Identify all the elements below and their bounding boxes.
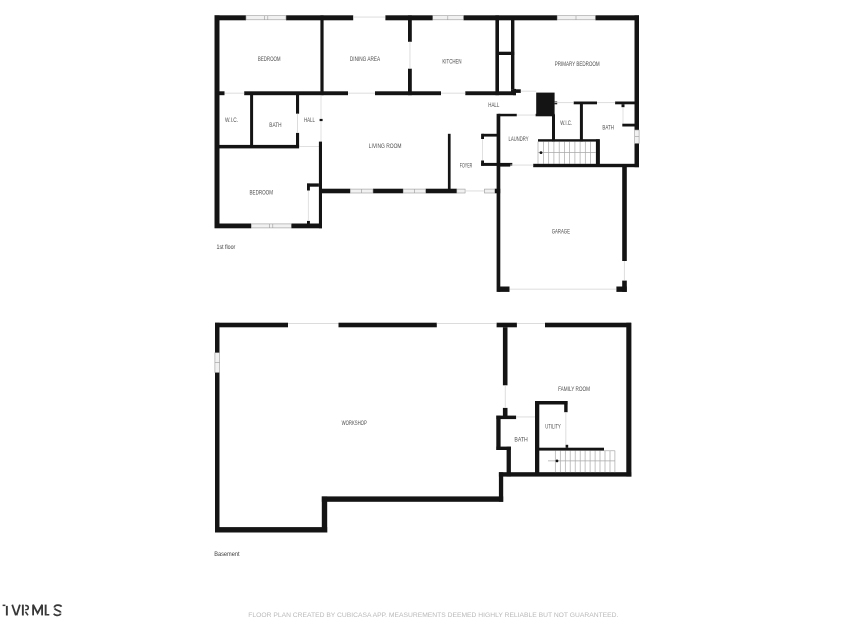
svg-text:LAUNDRY: LAUNDRY — [509, 136, 529, 143]
svg-text:Basement: Basement — [214, 551, 240, 558]
svg-text:UTILITY: UTILITY — [545, 424, 561, 431]
svg-text:KITCHEN: KITCHEN — [442, 59, 461, 66]
svg-text:W.I.C.: W.I.C. — [225, 117, 238, 124]
svg-text:BEDROOM: BEDROOM — [258, 56, 281, 63]
svg-text:WORKSHOP: WORKSHOP — [342, 420, 367, 427]
svg-text:BATH: BATH — [514, 436, 527, 443]
svg-text:FLOOR PLAN CREATED BY CUBICASA: FLOOR PLAN CREATED BY CUBICASA APP. MEAS… — [248, 612, 618, 619]
svg-text:1st floor: 1st floor — [217, 244, 236, 251]
svg-text:GARAGE: GARAGE — [552, 229, 570, 236]
svg-text:W.I.C.: W.I.C. — [560, 120, 572, 127]
svg-text:BATH: BATH — [602, 125, 614, 132]
svg-text:DINING AREA: DINING AREA — [350, 56, 381, 63]
svg-text:FOYER: FOYER — [460, 163, 473, 170]
svg-text:LIVING ROOM: LIVING ROOM — [369, 143, 402, 150]
svg-text:BEDROOM: BEDROOM — [250, 190, 274, 197]
svg-text:HALL: HALL — [304, 117, 315, 124]
svg-text:PRIMARY BEDROOM: PRIMARY BEDROOM — [555, 61, 600, 68]
svg-text:FAMILY ROOM: FAMILY ROOM — [558, 386, 590, 393]
svg-text:BATH: BATH — [269, 122, 281, 129]
svg-text:HALL: HALL — [488, 102, 499, 109]
